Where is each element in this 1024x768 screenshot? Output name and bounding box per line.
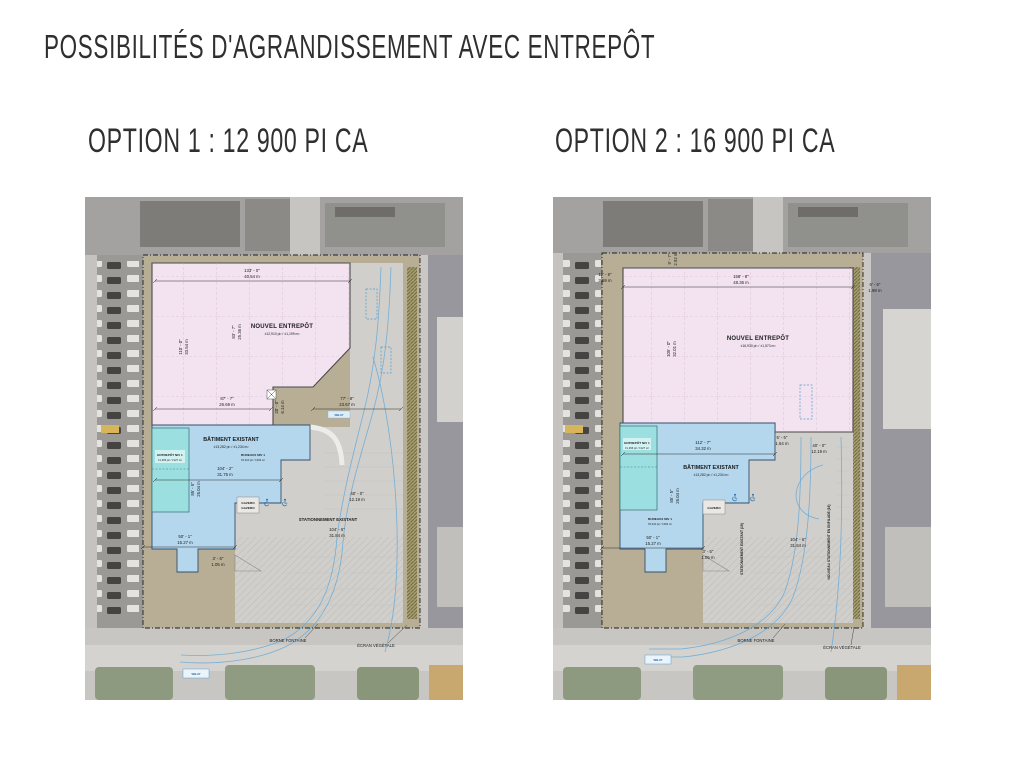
dim-top-right-m: 1.98 m bbox=[868, 288, 882, 293]
dim-building-width-m: 34.32 m bbox=[695, 446, 711, 451]
label-entrepot-niv1-area: ±1,366 pi² / ±127 m² bbox=[158, 458, 182, 462]
dim-top-mid-ft: 9' - 7" bbox=[667, 253, 672, 264]
dim-building-height-ft: 85' - 5" bbox=[669, 489, 674, 503]
site-plan-option-1: WB-67 WB-67 133' - 0" 40.54 m 110' - 0" … bbox=[85, 197, 463, 700]
label-batiment-existant: BÂTIMENT EXISTANT bbox=[683, 464, 739, 471]
dim-top-left-m: 3.59 m bbox=[598, 278, 612, 283]
dim-drive-ft: 77' - 8" bbox=[340, 396, 354, 401]
dim-top-ft: 158' - 8" bbox=[733, 274, 749, 279]
dim-top-right-ft: 6' - 6" bbox=[870, 282, 881, 287]
dim-notch-m: 6.14 m bbox=[280, 400, 285, 414]
dim-drive-m: 23.67 m bbox=[339, 402, 355, 407]
label-ecran-vegetale: ÉCRAN VÉGÉTALE bbox=[357, 643, 395, 648]
dim-south-ft: 87' - 7" bbox=[220, 396, 234, 401]
dim-gap-ft: 5' - 5" bbox=[777, 435, 788, 440]
vegetal-screen-strip bbox=[407, 267, 417, 619]
dim-building-width-ft: 112' - 7" bbox=[695, 440, 711, 445]
label-nouvel-entrepot: NOUVEL ENTREPÔT bbox=[251, 322, 313, 330]
label-borne-fontaine: BORNE FONTAINE bbox=[270, 638, 307, 643]
dim-notch-ft: 20' - 0" bbox=[274, 400, 279, 414]
dim-top-m: 48.36 m bbox=[733, 280, 749, 285]
dim-building-width-m: 31.75 m bbox=[217, 472, 233, 477]
dim-parking-width-ft: 40' - 0" bbox=[350, 491, 364, 496]
label-batiment-area: ±13,282 pi² / ±1,234 m² bbox=[213, 445, 249, 449]
dim-west-m: 15.27 m bbox=[177, 540, 193, 545]
page-title-text: POSSIBILITÉS D'AGRANDISSEMENT AVEC ENTRE… bbox=[44, 28, 655, 66]
dim-building-height-m: 26.04 m bbox=[196, 481, 201, 497]
label-entrepot-niv1: ENTREPÔT NIV 1 bbox=[157, 452, 183, 457]
option-2-heading: OPTION 2 : 16 900 PI CA bbox=[555, 122, 967, 161]
site-plan-option-1-svg: WB-67 WB-67 133' - 0" 40.54 m 110' - 0" … bbox=[85, 197, 463, 700]
label-nouvel-entrepot-area: ±12,910 pi² / ±1,199 m² bbox=[264, 332, 300, 336]
label-nouvel-entrepot: NOUVEL ENTREPÔT bbox=[727, 334, 789, 342]
dim-building-width-ft: 104' - 2" bbox=[217, 466, 233, 471]
dim-west-ft: 50' - 1" bbox=[178, 534, 192, 539]
label-nouveau-stationnement: NOUVEAU STATIONNEMENT EN ENFILADE (16) bbox=[827, 505, 831, 580]
site-plan-option-2: WB-67 11' - 9" 3.59 m 9' - 7" 2.92 m 158… bbox=[553, 197, 931, 700]
dim-parking-width-ft: 40' - 0" bbox=[812, 443, 826, 448]
warehouse-level1-shape bbox=[152, 428, 189, 512]
label-stationnement-existant: STATIONNEMENT EXISTANT bbox=[299, 517, 358, 522]
dim-small-m: 1.05 m bbox=[211, 562, 225, 567]
dim-building-height-m: 26.04 m bbox=[675, 488, 680, 504]
dim-small-m: 1.05 m bbox=[701, 555, 715, 560]
dim-left-m: 33.54 m bbox=[184, 339, 189, 355]
dim-mid-m: 25.36 m bbox=[237, 324, 242, 340]
label-nouvel-entrepot-area: ±16,930 pi² / ±1,573 m² bbox=[740, 344, 776, 348]
label-bureaux-niv1-area: ±5,310 pi² / ±493 m² bbox=[648, 522, 672, 526]
dim-top-left-ft: 11' - 9" bbox=[598, 272, 611, 277]
label-batiment-existant: BÂTIMENT EXISTANT bbox=[203, 436, 259, 443]
dim-small-ft: 3' - 5" bbox=[703, 549, 714, 554]
label-gazebo-2: GAZEBO bbox=[241, 506, 255, 510]
dim-gap-m: 1.64 m bbox=[775, 441, 789, 446]
dim-parking-length-m: 31.84 m bbox=[790, 543, 806, 548]
gazebo-shape bbox=[237, 497, 259, 513]
truck-road-label: WB-67 bbox=[192, 672, 201, 676]
dim-top-m: 40.54 m bbox=[244, 274, 260, 279]
option-1-heading: OPTION 1 : 12 900 PI CA bbox=[88, 122, 500, 161]
label-entrepot-niv1-area: ±1,366 pi² / ±127 m² bbox=[625, 446, 649, 450]
label-batiment-area: ±13,282 pi² / ±1,234 m² bbox=[693, 473, 729, 477]
dim-left-ft: 110' - 0" bbox=[178, 339, 183, 355]
label-bureaux-niv1: BUREAUX NIV 1 bbox=[241, 453, 265, 457]
dim-parking-length-ft: 104' - 6" bbox=[329, 527, 345, 532]
truck-template-label: WB-67 bbox=[335, 413, 344, 417]
page-title: POSSIBILITÉS D'AGRANDISSEMENT AVEC ENTRE… bbox=[44, 28, 943, 66]
label-ecran-vegetale: ÉCRAN VÉGÉTALE bbox=[823, 645, 861, 650]
label-gazebo: GAZEBO bbox=[707, 506, 721, 510]
truck-road-label: WB-67 bbox=[654, 658, 663, 662]
dim-parking-length-ft: 104' - 6" bbox=[790, 537, 806, 542]
dim-south-m: 26.69 m bbox=[219, 402, 235, 407]
label-entrepot-niv1: ENTREPÔT NIV 1 bbox=[624, 440, 650, 445]
label-borne-fontaine: BORNE FONTAINE bbox=[738, 638, 775, 643]
option-2-heading-text: OPTION 2 : 16 900 PI CA bbox=[555, 122, 835, 161]
dim-west-m: 15.27 m bbox=[645, 541, 661, 546]
dim-top-mid-m: 2.92 m bbox=[673, 252, 678, 266]
dim-parking-width-m: 12.19 m bbox=[811, 449, 827, 454]
dim-parking-length-m: 31.84 m bbox=[329, 533, 345, 538]
dim-small-ft: 3' - 5" bbox=[213, 556, 224, 561]
site-plan-option-2-svg: WB-67 11' - 9" 3.59 m 9' - 7" 2.92 m 158… bbox=[553, 197, 931, 700]
option-1-heading-text: OPTION 1 : 12 900 PI CA bbox=[88, 122, 368, 161]
label-gazebo-1: GAZEBO bbox=[241, 501, 255, 505]
new-warehouse-footprint bbox=[623, 268, 853, 432]
dim-top-ft: 133' - 0" bbox=[244, 268, 260, 273]
dim-left-m: 32.01 m bbox=[672, 341, 677, 357]
dim-building-height-ft: 85' - 5" bbox=[190, 482, 195, 496]
dim-mid-ft: 83' - 7" bbox=[231, 325, 236, 339]
dim-left-ft: 105' - 0" bbox=[666, 341, 671, 357]
dim-west-ft: 50' - 1" bbox=[646, 535, 660, 540]
label-stationnement-existant: STATIONNEMENT EXISTANT (19) bbox=[740, 523, 744, 575]
label-bureaux-niv1: BUREAUX NIV 1 bbox=[648, 517, 672, 521]
label-bureaux-niv1-area: ±5,310 pi² / ±493 m² bbox=[241, 458, 265, 462]
dim-parking-width-m: 12.19 m bbox=[349, 497, 365, 502]
